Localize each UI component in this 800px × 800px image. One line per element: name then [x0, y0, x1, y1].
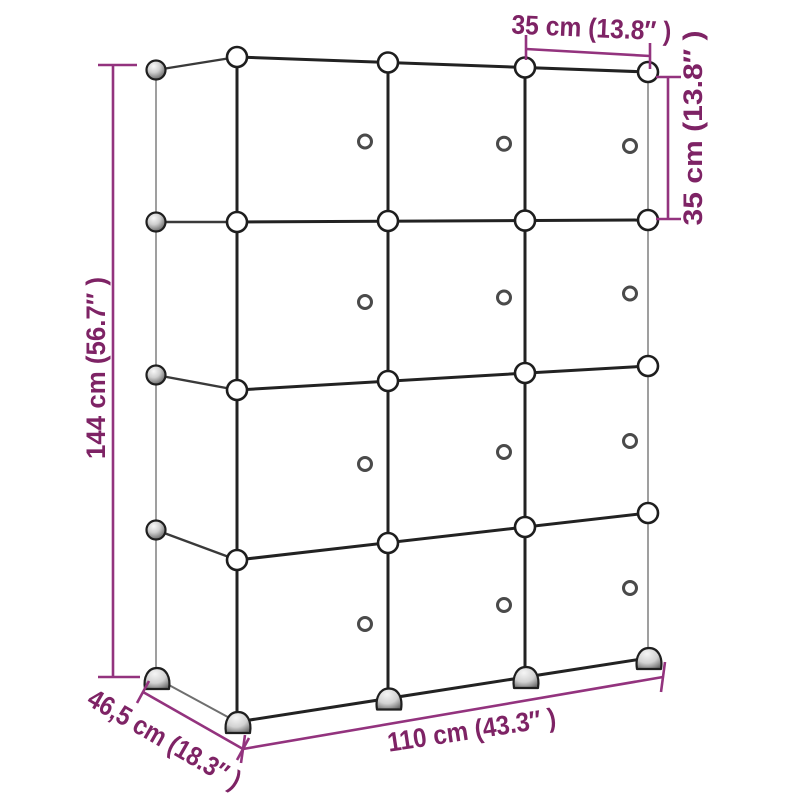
- door-knob: [624, 287, 637, 300]
- connector-ball: [147, 366, 166, 385]
- connector-ball: [378, 533, 398, 553]
- door-knob: [498, 446, 511, 459]
- connector-ball: [638, 356, 658, 376]
- cabinet-structure: [145, 47, 662, 733]
- dimension-depth: 46,5 cm (18.3″ ): [83, 681, 249, 795]
- connector-ball: [638, 62, 658, 82]
- door-knob: [624, 140, 637, 153]
- dimension-cube-height: 35 cm (13.8″ ): [656, 31, 708, 226]
- connector-ball: [638, 503, 658, 523]
- front-row-1: [237, 220, 648, 222]
- dimension-line: [526, 49, 650, 56]
- connector-ball: [515, 363, 535, 383]
- connector-ball: [227, 47, 247, 67]
- door-knob: [624, 582, 637, 595]
- dimension-tick: [137, 681, 149, 703]
- door-knob: [359, 458, 372, 471]
- diagram-canvas: 144 cm (56.7″ ) 35 cm (13.8″ ) 35 cm (13…: [0, 0, 800, 800]
- door-knob: [359, 135, 372, 148]
- foot-dome: [637, 648, 662, 669]
- side-shelf-3: [156, 530, 237, 560]
- dimension-label-cube-width: 35 cm (13.8″ ): [511, 10, 672, 47]
- foot-dome: [377, 689, 402, 710]
- dimension-label-cube-height: 35 cm (13.8″ ): [678, 31, 708, 226]
- connector-ball: [378, 211, 398, 231]
- connector-ball: [515, 58, 535, 78]
- door-knob: [624, 435, 637, 448]
- front-connector-balls: [227, 47, 658, 570]
- foot-dome: [145, 668, 170, 689]
- side-face: [156, 57, 237, 722]
- connector-ball: [147, 521, 166, 540]
- dimension-label-depth: 46,5 cm (18.3″ ): [83, 683, 247, 795]
- connector-ball: [378, 371, 398, 391]
- dimension-cube-width: 35 cm (13.8″ ): [511, 10, 672, 69]
- door-knob: [498, 291, 511, 304]
- side-shelf-2: [156, 375, 237, 390]
- front-row-top: [237, 57, 648, 72]
- dimension-total-height: 144 cm (56.7″ ): [81, 65, 140, 677]
- connector-ball: [147, 61, 166, 80]
- product-dimension-diagram: 144 cm (56.7″ ) 35 cm (13.8″ ) 35 cm (13…: [0, 0, 800, 800]
- connector-ball: [638, 210, 658, 230]
- side-top-edge: [156, 57, 237, 70]
- door-knob: [498, 599, 511, 612]
- front-row-3: [237, 513, 648, 560]
- connector-ball: [378, 53, 398, 73]
- front-row-2: [237, 366, 648, 390]
- connector-ball: [147, 213, 166, 232]
- dimension-label-total-height: 144 cm (56.7″ ): [81, 277, 111, 459]
- connector-ball: [227, 380, 247, 400]
- door-knobs: [359, 135, 637, 631]
- front-face-grid: [237, 57, 648, 722]
- door-knob: [359, 296, 372, 309]
- foot-dome: [226, 712, 251, 733]
- door-knob: [359, 618, 372, 631]
- connector-ball: [515, 211, 535, 231]
- connector-ball: [227, 212, 247, 232]
- door-knob: [498, 137, 511, 150]
- connector-ball: [227, 550, 247, 570]
- connector-ball: [515, 517, 535, 537]
- foot-dome: [514, 667, 539, 688]
